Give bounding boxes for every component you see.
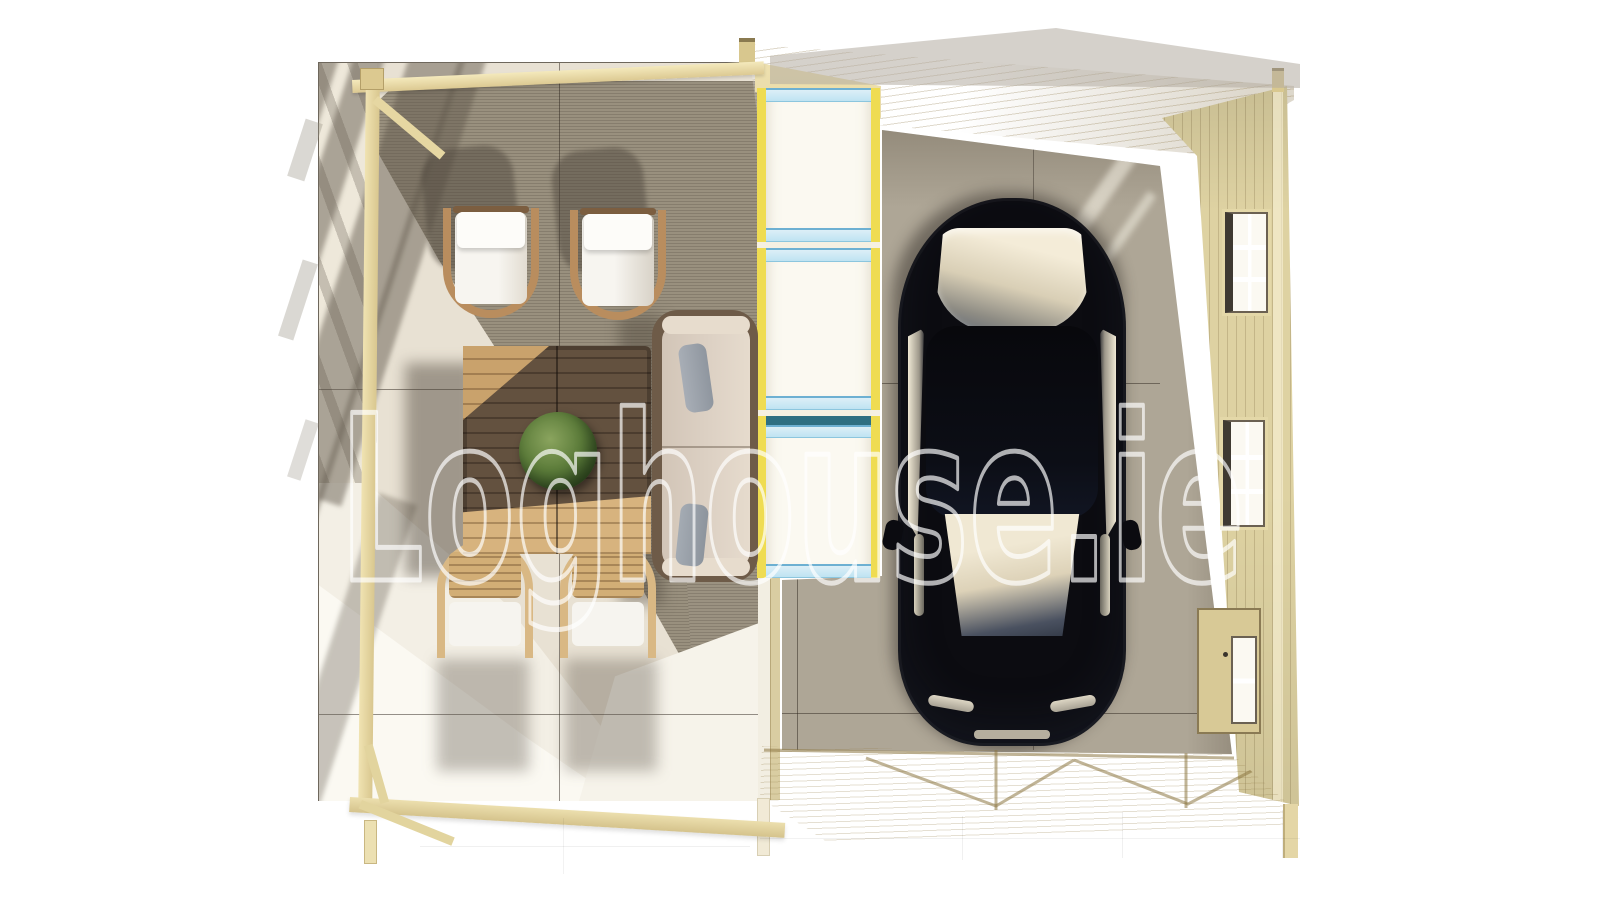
- ground-tile-seam: [760, 838, 1300, 839]
- ground-tile-seam: [1282, 810, 1283, 858]
- front-deck: [756, 740, 1304, 852]
- window-glass-edge: [766, 228, 871, 242]
- deck-door-chevrons: [756, 740, 1304, 852]
- window-glass-edge: [766, 248, 871, 262]
- armchair-shadow: [565, 659, 657, 771]
- render-canvas: Loghouse.ie: [0, 0, 1600, 900]
- paving-seam-horizontal: [319, 714, 759, 715]
- outside-shadow-sliver: [287, 419, 319, 480]
- right-wall-window: [1225, 212, 1268, 313]
- armchair: [443, 208, 539, 318]
- window-glass-edge: [766, 88, 871, 102]
- pergola-post-stub: [364, 820, 377, 864]
- armchair-cushion: [582, 214, 654, 306]
- armchair: [570, 210, 666, 320]
- door-handle: [1223, 652, 1228, 657]
- car-grille: [974, 730, 1050, 739]
- armchair-shadow: [437, 659, 529, 771]
- car-rear-window: [934, 228, 1090, 332]
- sofa-armrest: [662, 316, 750, 334]
- pergola-corner-cap: [360, 68, 384, 90]
- divider-window-bay: [757, 88, 880, 242]
- armchair-backrest: [584, 214, 652, 250]
- watermark-text: Loghouse.ie: [340, 378, 1245, 635]
- pergola-front-beam: [349, 797, 785, 838]
- outside-shadow-sliver: [278, 259, 318, 340]
- deck-right-post: [1283, 804, 1298, 858]
- armchair-backrest: [457, 212, 525, 248]
- ground-tile-seam: [420, 846, 750, 847]
- armchair-cushion: [455, 212, 527, 304]
- right-wall-sun-edge: [1273, 80, 1283, 810]
- ground-tile-seam: [1122, 812, 1123, 858]
- ground-tile-seam: [563, 818, 564, 874]
- door-glass-panel: [1231, 636, 1257, 724]
- watermark: Loghouse.ie: [320, 378, 1270, 648]
